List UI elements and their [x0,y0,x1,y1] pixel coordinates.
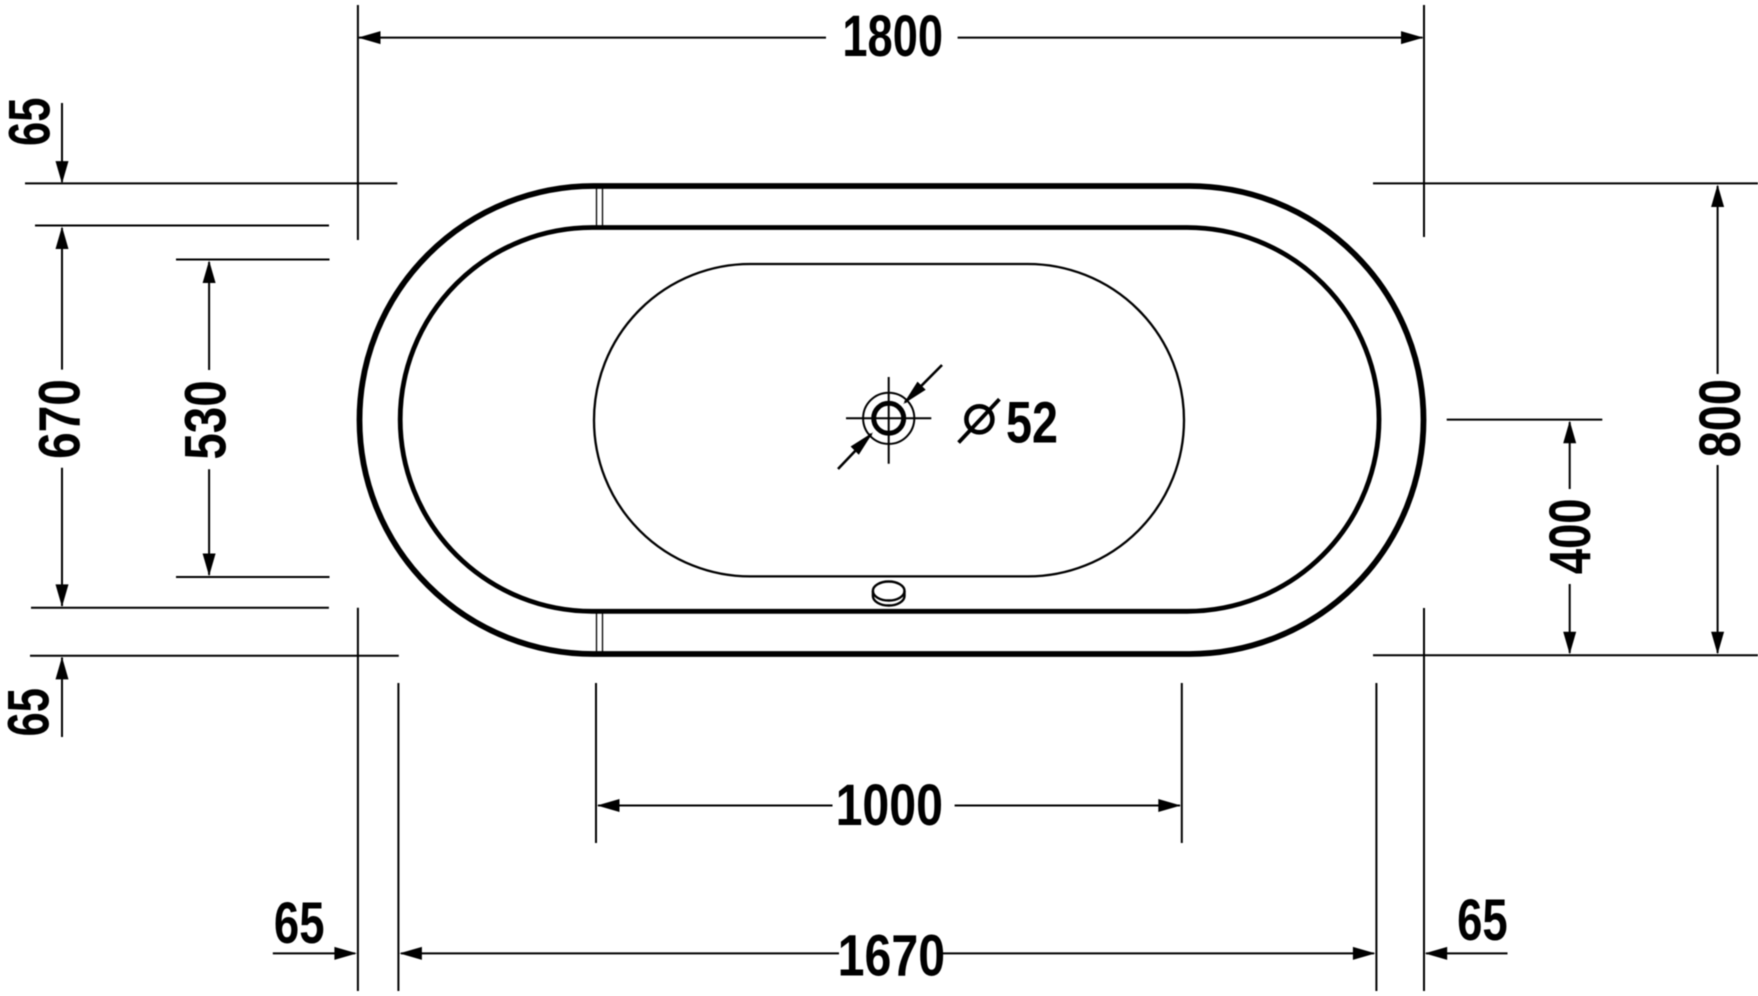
svg-text:65: 65 [0,688,61,736]
svg-text:670: 670 [28,379,92,459]
svg-text:1670: 1670 [838,924,945,988]
svg-text:1800: 1800 [842,5,943,70]
svg-text:65: 65 [0,98,62,146]
svg-text:530: 530 [174,380,239,459]
svg-text:65: 65 [274,892,325,957]
svg-text:400: 400 [1539,499,1604,575]
svg-text:800: 800 [1688,379,1753,457]
svg-text:65: 65 [1457,889,1508,954]
svg-text:52: 52 [1006,391,1058,456]
svg-text:1000: 1000 [836,774,943,838]
